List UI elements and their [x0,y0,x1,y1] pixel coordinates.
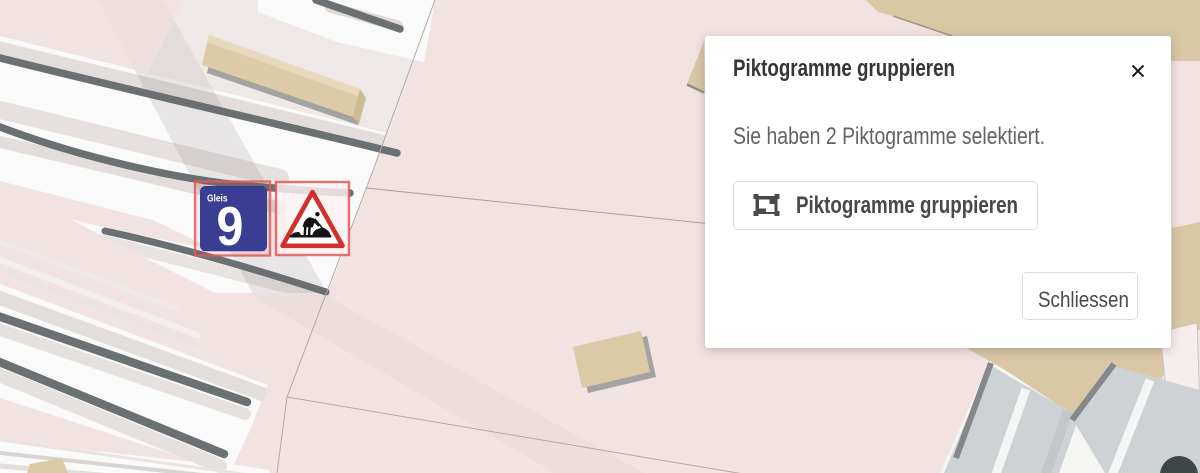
svg-text:9: 9 [217,195,244,257]
